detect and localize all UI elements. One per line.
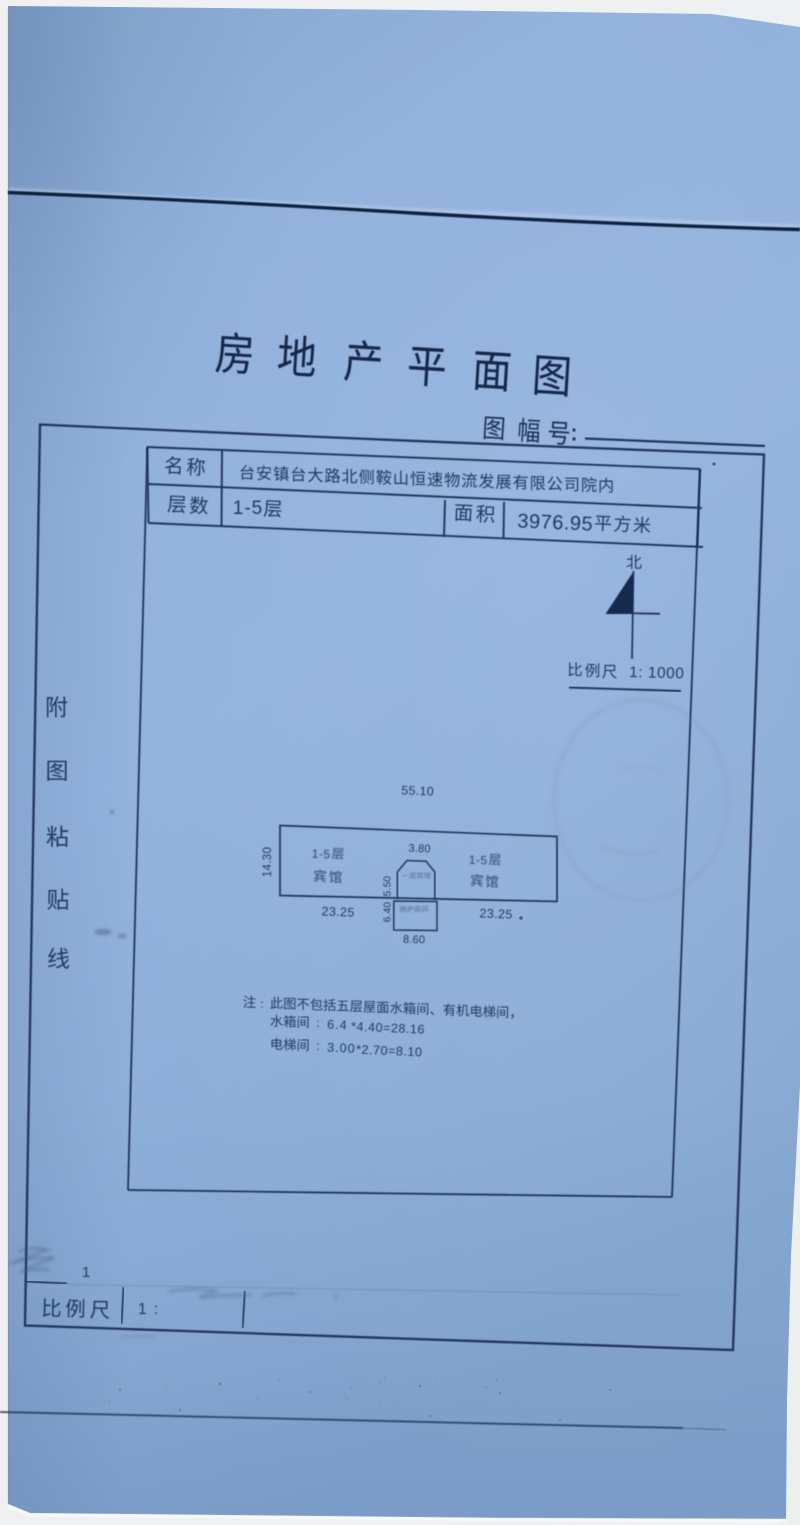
svg-text::: :: [316, 1039, 319, 1053]
svg-text:6.40: 6.40: [383, 902, 394, 923]
svg-text:1 :: 1 :: [138, 1301, 160, 1318]
svg-text::: :: [316, 1016, 319, 1030]
svg-text::: :: [260, 997, 263, 1011]
svg-text:23.25: 23.25: [479, 906, 513, 921]
svg-text:3.00: 3.00: [327, 1041, 356, 1056]
svg-text:1-5: 1-5: [311, 847, 330, 862]
svg-text:3.80: 3.80: [408, 843, 431, 856]
svg-text:1: 1: [82, 1264, 90, 1281]
svg-text:8.60: 8.60: [403, 934, 426, 947]
svg-text:1-5: 1-5: [233, 498, 263, 519]
svg-text:1: 1000: 1: 1000: [629, 664, 685, 682]
svg-text:5.50: 5.50: [383, 876, 394, 897]
svg-text:3976.95: 3976.95: [517, 510, 594, 535]
svg-text:14.30: 14.30: [262, 847, 274, 877]
svg-text:6.4: 6.4: [327, 1018, 348, 1033]
svg-text:23.25: 23.25: [321, 904, 355, 919]
svg-text:1-5: 1-5: [468, 853, 487, 868]
svg-text:55.10: 55.10: [401, 783, 434, 798]
svg-text::: :: [571, 423, 577, 445]
svg-text:*2.70=8.10: *2.70=8.10: [356, 1043, 423, 1060]
